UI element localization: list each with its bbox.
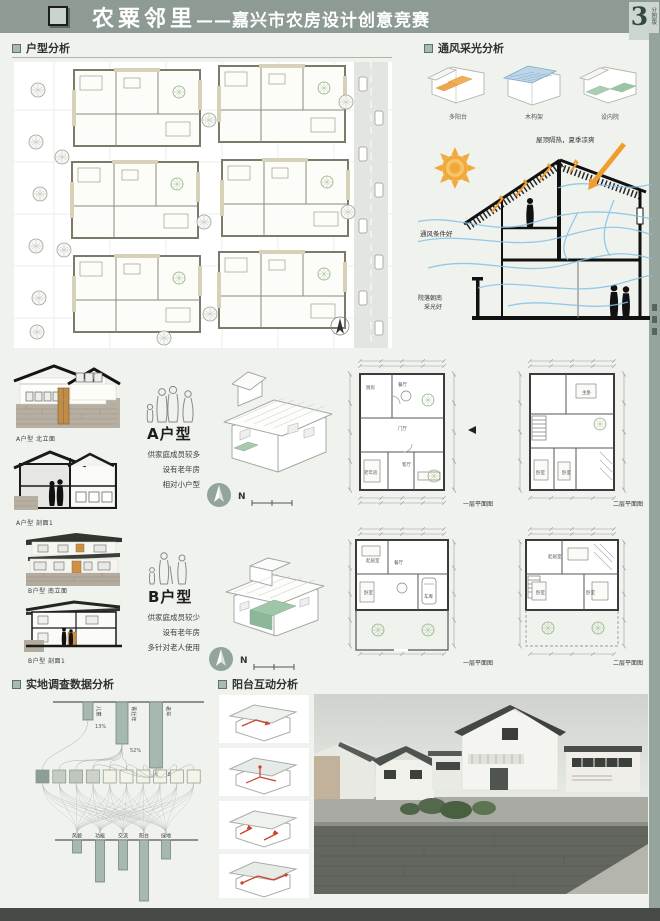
- survey-diagram: 儿童13%青壮年52%老年58%风貌功能交流阳台绿地: [8, 692, 212, 906]
- survey-bottom-label: 绿地: [161, 833, 171, 840]
- sheet-number: 3: [631, 4, 648, 29]
- unit-a-description: 供家庭成员较多 设有老年房 相对小户型: [124, 447, 200, 492]
- unit-b-plan-floor1: 起居室 餐厅 卧室 车库: [344, 524, 460, 664]
- balcony-axon-thumb-2: [218, 747, 310, 797]
- desc-line: 设有老年房: [124, 625, 200, 640]
- unit-b-description: 供家庭成员较少 设有老年房 多针对老人使用: [124, 610, 200, 655]
- balcony-axon-thumb-3: [218, 800, 310, 850]
- section-title: 户型分析: [26, 40, 70, 56]
- survey-bottom-label: 阳台: [139, 833, 149, 840]
- survey-top-bar: [150, 702, 163, 768]
- caption-a-section: A户型 剖面1: [16, 518, 53, 527]
- survey-top-bar-pct: 52%: [130, 748, 141, 754]
- survey-node-square: [103, 770, 116, 783]
- room-label: 厨房: [366, 384, 375, 391]
- unit-b-title: B户型: [148, 586, 192, 607]
- room-label: 卧室: [364, 589, 373, 596]
- family-figures-icon: [142, 380, 200, 424]
- title-main: 农粟邻里: [92, 7, 196, 32]
- axon-label: 设内院: [574, 112, 646, 121]
- room-label: 主卧: [582, 389, 591, 396]
- survey-bottom-label: 交流: [118, 833, 128, 840]
- ventilation-section-diagram: 屋顶隔热，夏季凉爽 通风条件好 院落朝南 采光好: [418, 128, 652, 354]
- header-square-icon: [48, 6, 68, 26]
- survey-top-bar-label: 老年: [165, 706, 173, 716]
- desc-line: 多针对老人使用: [124, 640, 200, 655]
- section-header-survey: 实地调查数据分析: [12, 676, 114, 692]
- survey-node-square: [86, 770, 99, 783]
- axon-wood-frame-roof: [498, 58, 570, 112]
- unit-a-title: A户型: [147, 423, 192, 444]
- room-label: 车库: [424, 593, 433, 600]
- caption-b-section: B户型 剖面1: [28, 656, 65, 665]
- caption-a-plan2: 二层平面图: [598, 499, 658, 508]
- unit-b-elevation-drawing: [24, 530, 124, 588]
- label-good-ventilation: 通风条件好: [420, 229, 453, 238]
- unit-a-plan-floor2: 主卧 卧室 卧室: [514, 356, 630, 508]
- room-label: 老年房: [364, 469, 378, 476]
- unit-b-north-compass: N: [208, 646, 318, 674]
- survey-node-square: [70, 770, 83, 783]
- north-label: N: [238, 492, 246, 502]
- section-underline: [12, 57, 392, 58]
- caption-a-elevation: A户型 北立面: [16, 434, 56, 443]
- section-bullet-icon: [12, 680, 21, 689]
- label-good-daylight: 采光好: [424, 303, 442, 311]
- survey-bottom-bar: [162, 840, 171, 859]
- survey-top-bar: [83, 702, 93, 720]
- section-bullet-icon: [218, 680, 227, 689]
- survey-bottom-label: 风貌: [72, 833, 82, 840]
- sun-icon: [434, 147, 476, 189]
- desc-line: 供家庭成员较多: [124, 447, 200, 462]
- room-label: 卧室: [536, 469, 545, 476]
- competition-poster: 农粟邻里——嘉兴市农房设计创意竞赛 3分图版 户型分析 通风采光分析 多阳台 木…: [0, 0, 660, 921]
- survey-top-bar-label: 儿童: [95, 706, 103, 716]
- poster-title: 农粟邻里——嘉兴市农房设计创意竞赛: [92, 1, 430, 33]
- desc-line: 设有老年房: [124, 462, 200, 477]
- section-header-balcony: 阳台互动分析: [218, 676, 298, 692]
- section-title: 阳台互动分析: [232, 676, 298, 692]
- room-label: 客厅: [402, 461, 411, 468]
- survey-node-square: [187, 770, 200, 783]
- desc-line: 相对小户型: [124, 477, 200, 492]
- section-bullet-icon: [424, 44, 433, 53]
- unit-a-plan-floor1: 厨房 餐厅 门厅 老年房 客厅: [344, 356, 460, 508]
- room-label: 餐厅: [394, 559, 403, 566]
- section-header-ventilation: 通风采光分析: [424, 40, 504, 56]
- survey-node-square: [36, 770, 49, 783]
- room-label: 卧室: [536, 589, 545, 596]
- survey-bottom-bar: [119, 840, 128, 870]
- survey-node-square: [120, 770, 133, 783]
- caption-b-plan1: 一层平面图: [438, 658, 518, 667]
- room-label: 卧室: [586, 589, 595, 596]
- room-label: 卧室: [562, 469, 571, 476]
- site-plan-drawing: [14, 62, 392, 348]
- section-bullet-icon: [12, 44, 21, 53]
- section-header-unit-analysis: 户型分析: [12, 40, 70, 56]
- caption-b-plan2: 二层平面图: [598, 658, 658, 667]
- survey-bottom-bar: [96, 840, 105, 882]
- section-title: 实地调查数据分析: [26, 676, 114, 692]
- title-sub: ——嘉兴市农房设计创意竞赛: [196, 11, 430, 31]
- axon-label: 木构架: [498, 112, 570, 121]
- survey-node-square: [170, 770, 183, 783]
- room-label: 起居室: [548, 553, 562, 560]
- survey-bottom-bar: [73, 840, 82, 853]
- axon-inner-courtyard: [574, 58, 646, 112]
- survey-node-square: [53, 770, 66, 783]
- room-label: 门厅: [398, 425, 407, 432]
- unit-b-axonometric: [210, 540, 340, 646]
- axon-label: 多阳台: [422, 112, 494, 121]
- unit-a-axonometric: [204, 360, 344, 484]
- survey-top-bar: [116, 702, 128, 744]
- north-label: N: [240, 656, 248, 666]
- room-label: 起居室: [366, 557, 380, 564]
- axon-multiple-balconies: [422, 58, 494, 112]
- balcony-axon-thumb-1: [218, 694, 310, 744]
- unit-b-section-drawing: [24, 598, 124, 654]
- strip-mark: [652, 328, 657, 335]
- survey-bottom-bar: [140, 840, 149, 901]
- footer-bar: [0, 908, 660, 921]
- section-title: 通风采光分析: [438, 40, 504, 56]
- survey-bottom-label: 功能: [95, 833, 105, 840]
- balcony-axon-thumb-4: [218, 853, 310, 899]
- strip-mark: [652, 316, 657, 323]
- unit-b-plan-floor2: 起居室 卧室 卧室: [514, 524, 630, 664]
- label-roof-insulation: 屋顶隔热，夏季凉爽: [536, 135, 595, 144]
- unit-a-section-drawing: [12, 446, 124, 518]
- elder-figures-icon: [144, 548, 196, 586]
- section-cut-marker: [466, 424, 478, 436]
- survey-top-bar-pct: 13%: [95, 724, 106, 730]
- room-label: 餐厅: [398, 381, 407, 388]
- unit-a-elevation-drawing: [12, 362, 124, 434]
- desc-line: 供家庭成员较少: [124, 610, 200, 625]
- sheet-number-caption: 分图版: [649, 7, 657, 25]
- render-photo: [314, 694, 648, 894]
- caption-a-plan1: 一层平面图: [438, 499, 518, 508]
- caption-b-elevation: B户型 南立面: [28, 586, 68, 595]
- label-courtyard-south: 院落朝南: [418, 294, 442, 302]
- strip-mark: [652, 304, 657, 311]
- unit-a-north-compass: N: [206, 482, 316, 510]
- survey-top-bar-label: 青壮年: [130, 706, 138, 722]
